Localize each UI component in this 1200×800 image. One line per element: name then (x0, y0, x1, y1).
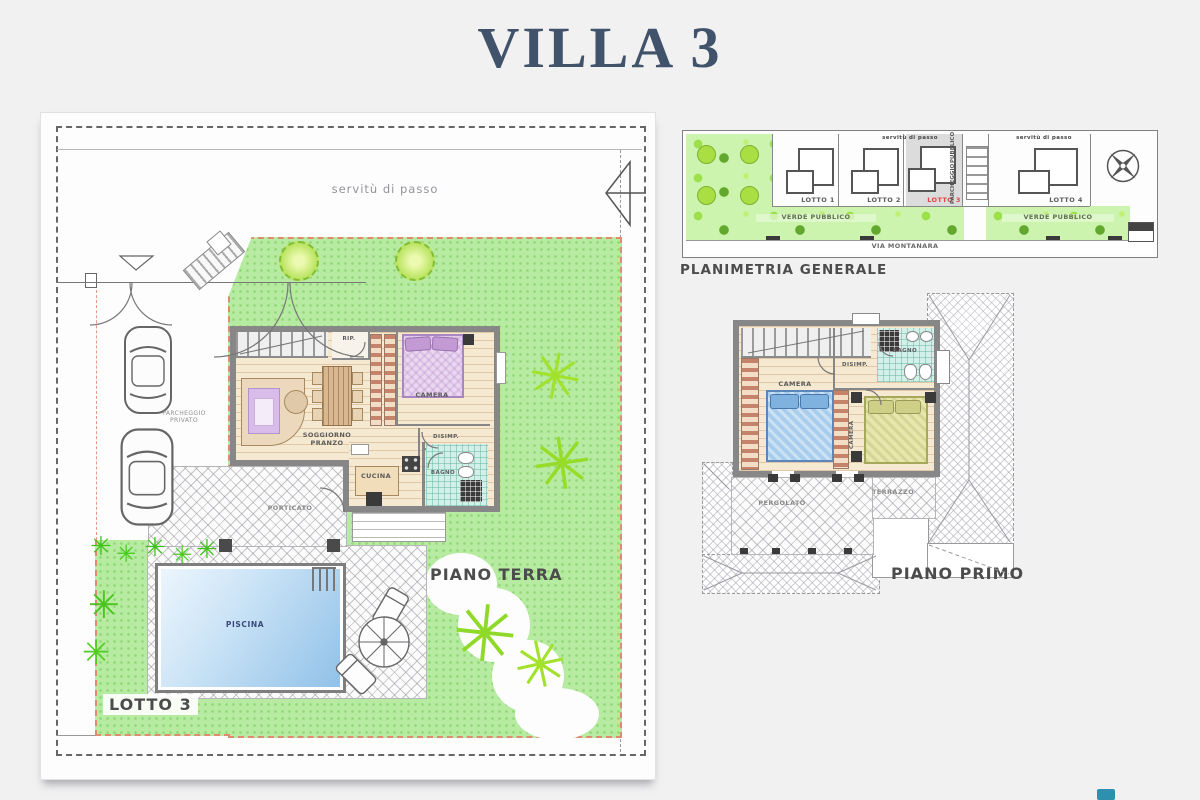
lot-wall (988, 134, 989, 206)
umbrella-icon (332, 586, 432, 698)
pillow (770, 394, 799, 409)
terrace-label: TERRAZZO (858, 489, 928, 497)
ff-staircase (741, 328, 871, 358)
palm-icon: ✳ (196, 537, 218, 563)
front-fence (56, 282, 366, 283)
ff-sink (920, 331, 933, 342)
door-threshold (768, 474, 778, 482)
pillow (800, 394, 829, 409)
gate-post (85, 273, 97, 288)
palm-icon: ✳ (116, 542, 136, 566)
boundary-stub-line (56, 735, 96, 736)
street-label: VIA MONTANARA (858, 243, 952, 251)
utility-building (1128, 222, 1154, 242)
pergola-area (731, 477, 874, 555)
roof-left (702, 462, 733, 558)
wall-segment (396, 424, 490, 426)
sofa-cushion-inner (254, 398, 274, 426)
terrace-area (872, 477, 936, 519)
bush-icon: ✳ (523, 342, 587, 414)
porch-post (219, 539, 232, 552)
public-green-label: VERDE PUBBLICO (756, 214, 876, 222)
lot-wall (772, 134, 773, 206)
car-icon (120, 322, 176, 418)
lot-caption: LOTTO 3 (103, 694, 198, 715)
lot-label-4: LOTTO 4 (1048, 197, 1084, 205)
easement-label: servitù di passo (300, 183, 470, 197)
parking-boundary-line (96, 285, 97, 540)
lot-wall (962, 134, 963, 206)
storage-label: RIP. (332, 336, 366, 343)
shower (460, 480, 482, 502)
door-threshold (854, 474, 864, 482)
ground-floor-caption: PIANO TERRA (430, 565, 563, 584)
driveway-mark (860, 236, 874, 240)
door-threshold (832, 474, 842, 482)
public-green-right (986, 206, 1130, 240)
pergola-post (740, 548, 748, 554)
wardrobe (384, 334, 396, 426)
pillow (895, 400, 921, 414)
porch-post (327, 539, 340, 552)
wardrobe (370, 334, 382, 426)
private-parking-label: PARCHEGGIO PRIVATO (158, 410, 210, 424)
pergola-post (772, 548, 780, 554)
villa-presentation-sheet: VILLA 3 servitù di passo PORTICATO PISCI… (0, 0, 1200, 800)
master-easement-label: servitù di passo (1012, 135, 1076, 142)
ff-bathroom-label: BAGNO (880, 348, 930, 355)
ff-wardrobe (741, 358, 759, 470)
tree-icon (697, 145, 716, 164)
ff-bedroom2-label: CAMERA (849, 405, 862, 465)
fridge (366, 492, 382, 506)
driveway-mark (1046, 236, 1060, 240)
roof-right (927, 293, 1014, 546)
bathroom-label: BAGNO (424, 470, 462, 477)
driveway-mark (1108, 236, 1122, 240)
ff-wardrobe (833, 390, 849, 469)
ff-hall-label: DISIMP. (831, 362, 879, 369)
dining-chair (312, 390, 323, 403)
public-parking-rungs (966, 146, 988, 200)
pillow (432, 336, 459, 352)
car-icon (116, 424, 178, 530)
palm-icon: ✳ (172, 543, 192, 567)
lot-label-2: LOTTO 2 (866, 197, 902, 205)
lot-house-annex (851, 170, 879, 194)
ff-bedroom1-label: CAMERA (760, 381, 830, 389)
pillow (868, 400, 894, 414)
outdoor-steps (352, 512, 446, 542)
living-room-label: SOGGIORNO PRANZO (296, 432, 358, 448)
toilet (458, 452, 474, 464)
porch-label: PORTICATO (258, 505, 322, 513)
nightstand (925, 392, 936, 403)
stove (402, 456, 420, 472)
kitchen-label: CUCINA (354, 473, 398, 481)
ff-toilet (904, 364, 917, 380)
armchair (284, 390, 308, 414)
master-plan-caption: PLANIMETRIA GENERALE (680, 262, 887, 278)
dining-chair (352, 408, 363, 421)
tree-icon (740, 186, 759, 205)
bush-icon: ✳ (82, 636, 111, 670)
roof-vent (852, 313, 880, 325)
lot-wall (838, 134, 839, 206)
first-floor-caption: PIANO PRIMO (891, 564, 1024, 583)
watermark-logo (1097, 789, 1115, 800)
lots-bottom-wall (772, 206, 1090, 207)
wall-segment (422, 442, 425, 512)
staircase (236, 332, 328, 358)
bush-icon: ✳ (527, 424, 597, 504)
tree-icon (279, 241, 319, 281)
tree-icon (395, 241, 435, 281)
lot-house-annex (1018, 170, 1050, 194)
driveway-mark (766, 236, 780, 240)
door-threshold (790, 474, 800, 482)
dining-chair (352, 372, 363, 385)
pergola-label: PERGOLATO (742, 500, 822, 508)
ff-bidet (919, 364, 932, 380)
ff-sink (906, 331, 919, 342)
lot-wall (903, 134, 904, 206)
boundary-top-line (57, 149, 642, 150)
compass-icon (1102, 145, 1144, 187)
pergola-post (844, 548, 852, 554)
pool-label: PISCINA (210, 620, 280, 629)
ff-balcony-door (936, 350, 950, 384)
lot-wall (1090, 134, 1091, 206)
public-green-label: VERDE PUBBLICO (1002, 214, 1114, 222)
bedroom-label: CAMERA (404, 392, 460, 400)
tree-icon (740, 145, 759, 164)
public-parking-label: PARCHEGGIO PUBBLICO (950, 142, 956, 204)
palm-icon: ✳ (144, 535, 166, 561)
lot-house-annex (786, 170, 814, 194)
bedroom-window (496, 352, 506, 384)
access-arrow-icon (596, 153, 652, 233)
lot-label-1: LOTTO 1 (800, 197, 836, 205)
wall-segment (833, 328, 835, 390)
roof-bottom (702, 554, 880, 594)
dining-table (322, 366, 352, 426)
pillow (405, 336, 432, 352)
wall-segment (396, 332, 398, 426)
pergola-post (808, 548, 816, 554)
bush-icon: ✳ (88, 586, 120, 624)
nightstand (463, 334, 474, 345)
nightstand (851, 392, 862, 403)
lot-label-3: LOTTO 3 (926, 197, 962, 205)
dining-chair (312, 408, 323, 421)
public-green-left (686, 206, 964, 240)
hallway-label: DISIMP. (420, 434, 472, 441)
dining-chair (312, 372, 323, 385)
page-title: VILLA 3 (0, 14, 1200, 81)
kitchen-sink (351, 444, 369, 455)
master-easement-label: servitù di passo (878, 135, 942, 142)
tree-icon (697, 186, 716, 205)
dining-chair (352, 390, 363, 403)
palm-icon: ✳ (90, 534, 112, 560)
lot-house-annex (908, 168, 936, 192)
